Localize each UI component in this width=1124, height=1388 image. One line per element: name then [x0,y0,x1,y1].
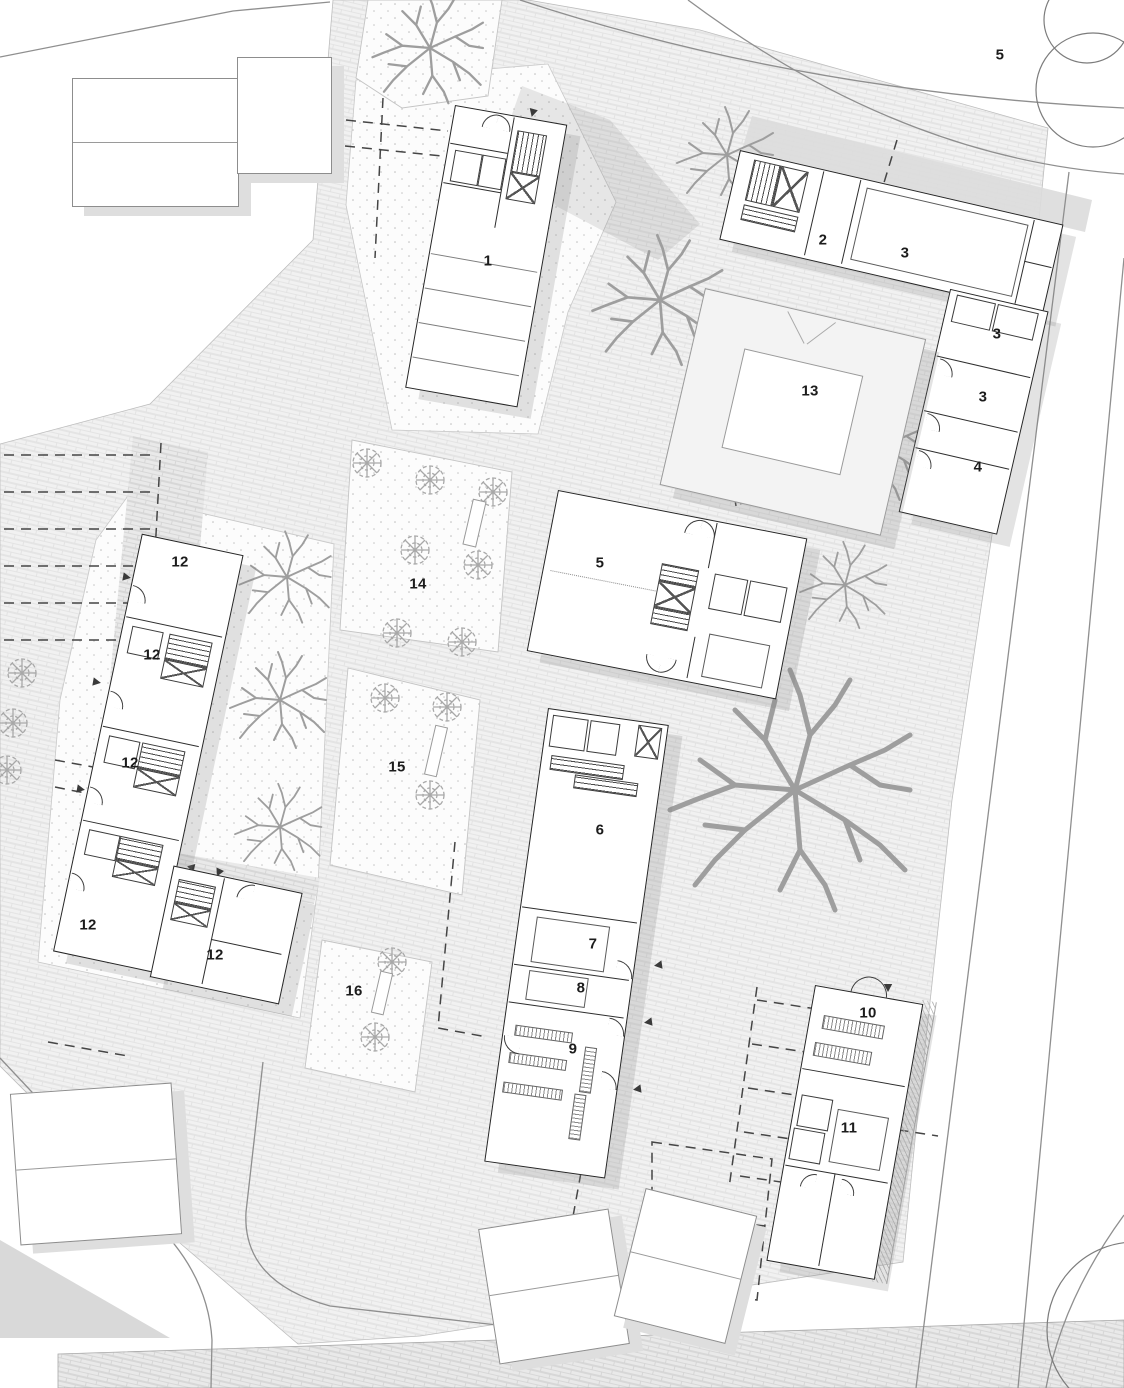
bld-12c-label: 12 [121,755,138,772]
bld-12d-label: 12 [79,917,96,934]
labels-layer: 1233345567891011121212121213141516 [0,0,1124,1388]
bld-13-label: 13 [801,383,818,400]
site-plan: 1233345567891011121212121213141516 [0,0,1124,1388]
plot-15-label: 15 [388,759,405,776]
bld-11-label: 11 [841,1120,857,1137]
bld-4-label: 4 [974,459,983,476]
bld-12a-label: 12 [171,554,188,571]
bld-8-label: 8 [577,980,586,997]
plot-14-label: 14 [409,576,426,593]
street-5-label: 5 [996,47,1005,64]
bld-5-label: 5 [596,555,605,572]
bld-7-label: 7 [589,936,598,953]
bld-9-label: 9 [569,1041,578,1058]
plot-16-label: 16 [345,983,362,1000]
room-3c-label: 3 [979,389,988,406]
room-3a-label: 3 [901,245,910,262]
bld-1-label: 1 [484,253,493,270]
bld-6-label: 6 [596,822,605,839]
bld-12e-label: 12 [206,947,223,964]
room-3b-label: 3 [993,326,1002,343]
bld-2-label: 2 [819,232,828,249]
bld-12b-label: 12 [143,647,160,664]
bld-10-label: 10 [859,1005,876,1022]
